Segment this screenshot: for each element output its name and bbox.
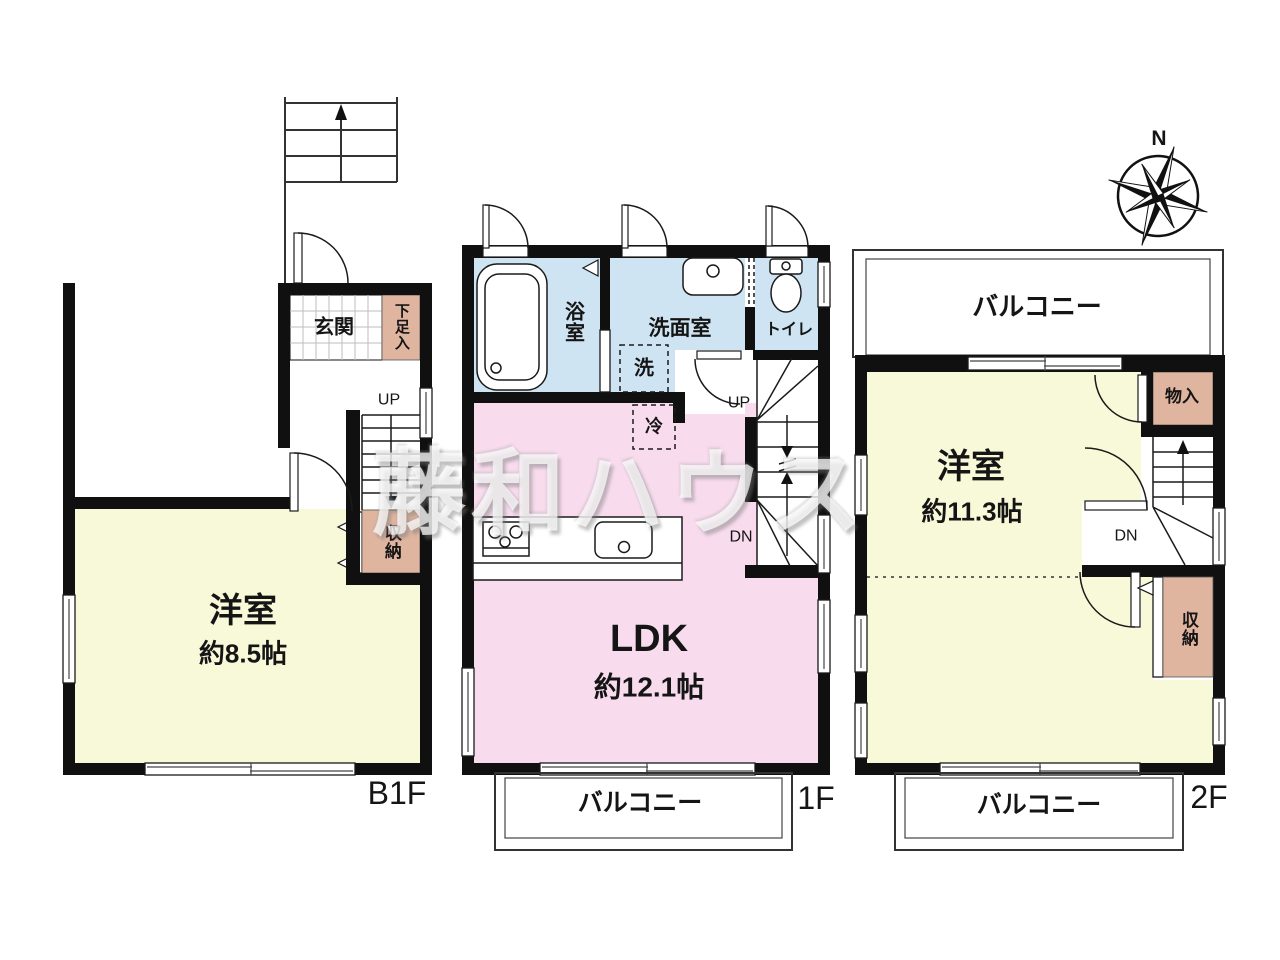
f2-room-size-label: 約11.3帖 — [921, 498, 1022, 525]
b1f-entrance-label: 玄関 — [314, 318, 354, 339]
b1f-up-label: UP — [378, 393, 400, 410]
b1f-entrance-door — [294, 233, 348, 283]
f1-fridge-label: 冷 — [645, 418, 663, 437]
f2-closet-label: 物入 — [1165, 388, 1199, 406]
f2-room-floor-3 — [1153, 680, 1213, 763]
b1f-floor-label: B1F — [368, 777, 427, 811]
f1-toilet-door — [749, 258, 754, 307]
b1f-room-door — [290, 453, 352, 511]
f2-stairs — [1153, 437, 1213, 565]
b1f-room-size-label: 約8.5帖 — [199, 640, 287, 667]
sink-icon — [683, 258, 743, 295]
f2-floor-label: 2F — [1190, 781, 1227, 815]
b1f-shoebox-label: 下足入 — [393, 303, 409, 351]
f2-balcony-bottom-label: バルコニー — [977, 792, 1102, 818]
f1-up-label: UP — [728, 396, 750, 413]
b1f-room-label: 洋室 — [209, 594, 277, 630]
f2-dn-label: DN — [1114, 529, 1137, 546]
kitchen-counter — [473, 517, 682, 580]
f1-floor-label: 1F — [797, 782, 834, 816]
f1-ldk-label: LDK — [610, 620, 688, 660]
f1-balcony-label: バルコニー — [578, 790, 703, 816]
f1-plan — [462, 205, 830, 850]
f1-bath-label: 浴室 — [562, 301, 583, 343]
f2-storage-slider — [1153, 577, 1163, 677]
f2-room-floor-2 — [1141, 577, 1153, 763]
f1-bath-door — [600, 330, 610, 392]
f2-room-label: 洋室 — [937, 450, 1005, 486]
bathtub-icon — [477, 264, 547, 390]
f2-plan — [853, 250, 1225, 850]
f1-washer-label: 洗 — [634, 359, 654, 380]
b1f-stairs — [362, 415, 420, 510]
f2-storage-label: 収納 — [1179, 611, 1197, 647]
b1f-plan — [63, 97, 432, 775]
f2-balcony-top-label: バルコニー — [972, 293, 1101, 320]
f1-dn-label: DN — [729, 530, 752, 547]
f1-washroom-label: 洗面室 — [649, 318, 712, 340]
f1-ldk-size-label: 約12.1帖 — [594, 672, 705, 701]
compass-icon — [1092, 130, 1223, 261]
toilet-icon — [770, 259, 802, 312]
f1-toilet-label: トイレ — [765, 323, 813, 340]
floor-plan-page: N 玄関 下足入 UP 収納 洋室 約8.5帖 B1F 浴室 洗面室 洗 冷 ト… — [0, 0, 1280, 960]
compass-n-label: N — [1151, 128, 1166, 150]
b1f-closet-label: 収納 — [382, 524, 400, 560]
